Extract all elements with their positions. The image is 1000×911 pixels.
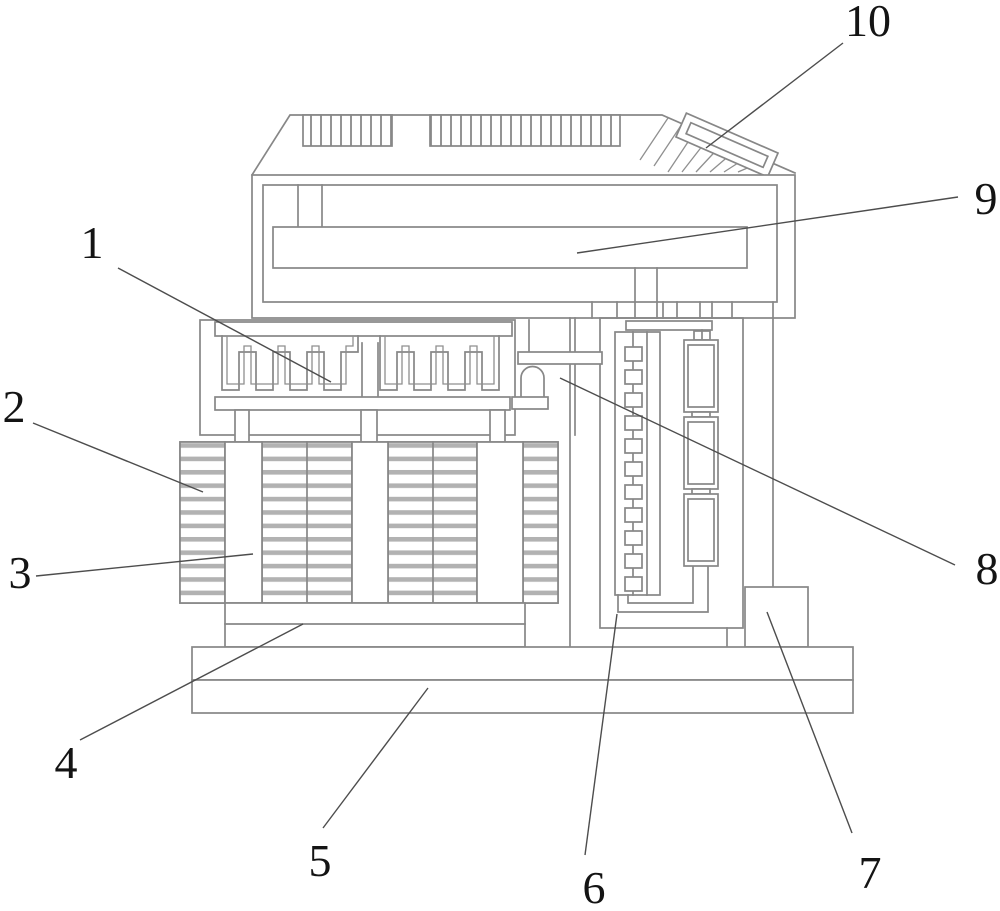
top-wire — [626, 321, 712, 330]
chain-assembly — [615, 332, 660, 595]
leader-line-10 — [706, 43, 843, 148]
vent-grille-right — [430, 115, 620, 146]
capsule-stack — [684, 331, 718, 566]
base — [192, 647, 853, 713]
fin-stack-right — [523, 442, 558, 603]
callout-label-1: 1 — [81, 217, 104, 268]
corner-panel — [676, 113, 778, 177]
core-block — [180, 442, 558, 603]
spacer-column-3 — [477, 442, 523, 603]
dome — [521, 367, 544, 401]
meander-box — [200, 320, 515, 443]
spacer-column-2 — [352, 442, 388, 603]
callout-label-10: 10 — [845, 0, 891, 46]
meander-top-bar — [215, 322, 512, 336]
callout-label-7: 7 — [859, 847, 882, 898]
spacer-column-1 — [225, 442, 262, 603]
leader-line-2 — [33, 423, 203, 492]
callout-label-3: 3 — [9, 547, 32, 598]
vent-grille-left — [303, 115, 392, 146]
roof — [252, 113, 795, 177]
dome-bracket-bar — [518, 352, 602, 364]
fin-stack-left — [180, 442, 225, 603]
callout-label-5: 5 — [309, 835, 332, 886]
callout-label-8: 8 — [976, 543, 999, 594]
middle-tower — [570, 318, 808, 647]
inner-panel-9 — [273, 227, 747, 268]
dome-shelf — [512, 397, 548, 409]
dome-sensor — [512, 320, 602, 409]
callout-label-6: 6 — [583, 862, 606, 911]
leader-line-7 — [767, 612, 852, 833]
base-slab-top — [192, 647, 853, 680]
chain-beads — [625, 347, 642, 591]
callout-label-4: 4 — [55, 737, 78, 788]
machine-diagram: 12345678910 — [0, 0, 1000, 911]
patent-figure-page: 12345678910 — [0, 0, 1000, 911]
upper-housing — [252, 175, 795, 318]
meander-shelf — [215, 397, 510, 410]
base-slab-bottom — [192, 680, 853, 713]
callout-label-9: 9 — [975, 173, 998, 224]
callout-label-2: 2 — [3, 381, 26, 432]
